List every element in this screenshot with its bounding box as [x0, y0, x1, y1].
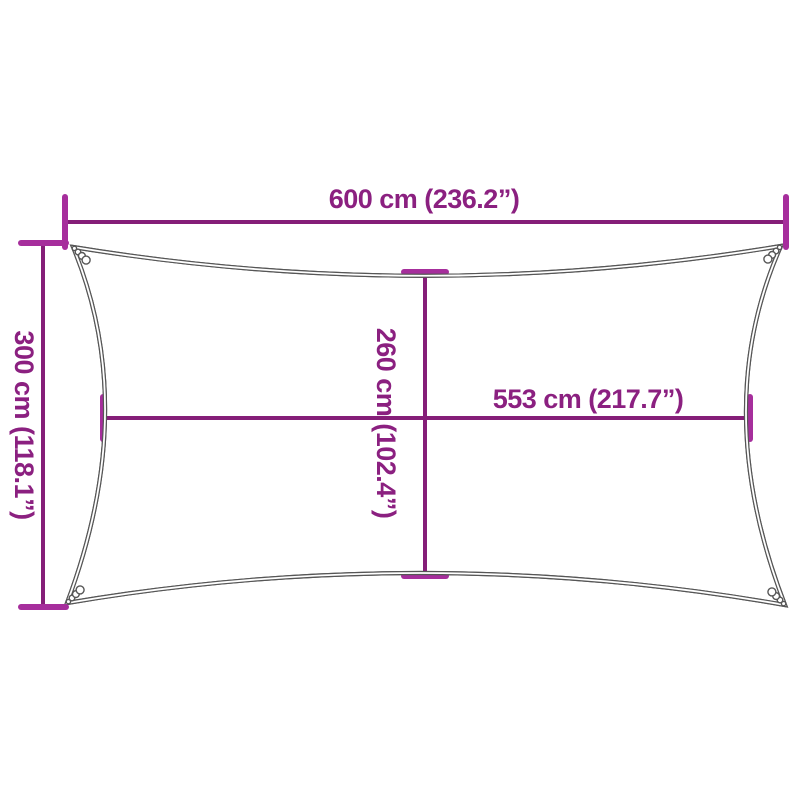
dimension-label-inner-height: 260 cm (102.4”) — [369, 253, 403, 593]
dimension-label-top-width: 600 cm (236.2”) — [254, 182, 594, 216]
dimension-label-left-height: 300 cm (118.1”) — [7, 255, 41, 595]
diagram-canvas: 600 cm (236.2”) 300 cm (118.1”) 260 cm (… — [0, 0, 800, 800]
dimension-label-inner-width: 553 cm (217.7”) — [418, 382, 758, 416]
